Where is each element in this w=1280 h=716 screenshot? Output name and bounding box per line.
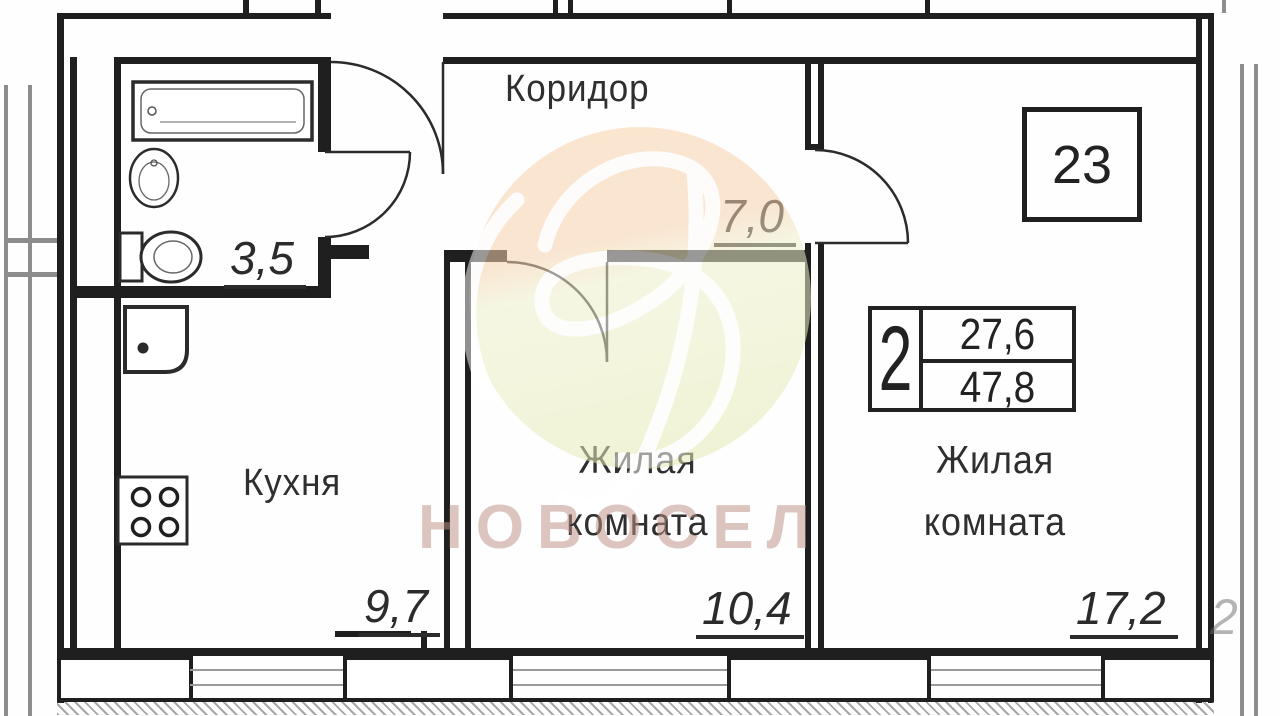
- wall-segment: [443, 13, 1214, 19]
- wall-segment: [70, 57, 77, 648]
- entry-door-swing: [331, 62, 443, 174]
- corridor-area: 7,0: [714, 192, 796, 247]
- wall-segment-light: [4, 85, 8, 716]
- stove-icon: [118, 477, 187, 544]
- wall-segment: [243, 0, 249, 13]
- bathtub-icon: [133, 82, 312, 140]
- wall-segment: [114, 57, 121, 656]
- window-glazing-line: [190, 669, 343, 671]
- spec-rooms-count: 2: [880, 310, 911, 408]
- wall-segment: [63, 13, 331, 19]
- wall-segment: [727, 0, 732, 13]
- window-pier: [57, 656, 193, 702]
- wall-segment: [818, 64, 824, 150]
- living-room-2-label-line2: комната: [873, 492, 1118, 554]
- living-room-2-area: 17,2: [1070, 584, 1178, 639]
- window-glazing-line: [931, 684, 1101, 686]
- wall-segment-light: [8, 272, 57, 277]
- unit-number-box: 23: [1022, 107, 1142, 222]
- logo-circle: [469, 127, 811, 469]
- wall-segment: [444, 250, 450, 650]
- wall-segment: [1196, 13, 1202, 703]
- wall-segment: [444, 250, 507, 262]
- wall-segment: [57, 13, 64, 703]
- window-glazing-line: [513, 669, 727, 671]
- wall-segment-light: [1240, 64, 1244, 716]
- wall-segment: [318, 57, 331, 152]
- wall-segment-light: [8, 238, 57, 243]
- bathroom-door-swing: [325, 152, 410, 237]
- wall-segment: [925, 0, 930, 13]
- clipped-digit: 2: [1210, 588, 1238, 646]
- wall-segment-light: [1254, 64, 1258, 716]
- wall-segment: [805, 243, 811, 650]
- wall-segment: [805, 144, 824, 150]
- kitchen-sink-icon: [125, 307, 187, 372]
- corridor-label: Коридор: [505, 68, 650, 111]
- window-glazing-line: [931, 669, 1101, 671]
- wall-segment: [805, 64, 811, 150]
- spec-living-area: 27,6: [932, 310, 1063, 359]
- apartment-spec-table: 2 27,6 47,8: [868, 306, 1076, 412]
- wall-segment: [57, 648, 1214, 656]
- floor-plan: Коридор 7,0 3,5 Кухня 9,7 Жилая комната …: [0, 0, 1280, 716]
- wall-segment: [607, 250, 810, 262]
- exterior-hatch: [57, 702, 1214, 715]
- kitchen-label: Кухня: [243, 462, 341, 505]
- window-pier: [1101, 656, 1214, 702]
- living-room-2-door-swing: [815, 150, 908, 243]
- wall-segment: [315, 0, 321, 13]
- wall-segment: [117, 57, 331, 64]
- window-glazing-line: [513, 684, 727, 686]
- kitchen-area: 9,7: [358, 582, 440, 637]
- living-room-1-label-line1: Жилая: [474, 430, 801, 492]
- washbasin-icon: [130, 149, 178, 207]
- spec-total-area: 47,8: [932, 363, 1063, 412]
- window-pier: [727, 656, 931, 702]
- wall-segment: [568, 0, 573, 13]
- living-room-1-door-swing: [507, 262, 607, 362]
- living-room-1-label: Жилая комната: [474, 430, 801, 554]
- wall-segment-light: [1222, 0, 1226, 13]
- wall-segment: [443, 57, 1196, 64]
- window-glazing-line: [190, 684, 343, 686]
- window-pier: [343, 656, 513, 702]
- wall-segment: [553, 0, 558, 13]
- bathroom-area: 3,5: [224, 234, 306, 289]
- living-room-1-area: 10,4: [696, 584, 804, 639]
- wall-segment-light: [28, 85, 32, 716]
- wall-segment: [331, 245, 369, 259]
- living-room-2-label-line1: Жилая: [873, 430, 1118, 492]
- living-room-2-label: Жилая комната: [873, 430, 1118, 554]
- unit-number: 23: [1052, 134, 1112, 196]
- toilet-icon: [120, 232, 201, 282]
- wall-segment: [465, 262, 471, 650]
- living-room-1-label-line2: комната: [474, 492, 801, 554]
- wall-segment: [818, 243, 824, 650]
